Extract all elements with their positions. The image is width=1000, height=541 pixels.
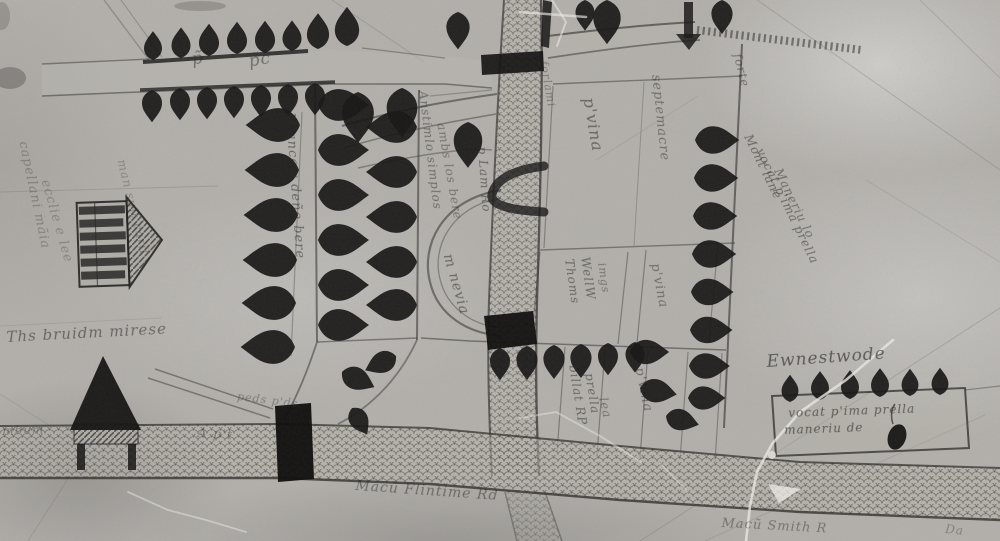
manuscript-map: capellani mãiaecclie e leeman suit caril… — [0, 0, 1000, 541]
photo-grain — [0, 0, 1000, 541]
map-drawing — [0, 0, 1000, 541]
